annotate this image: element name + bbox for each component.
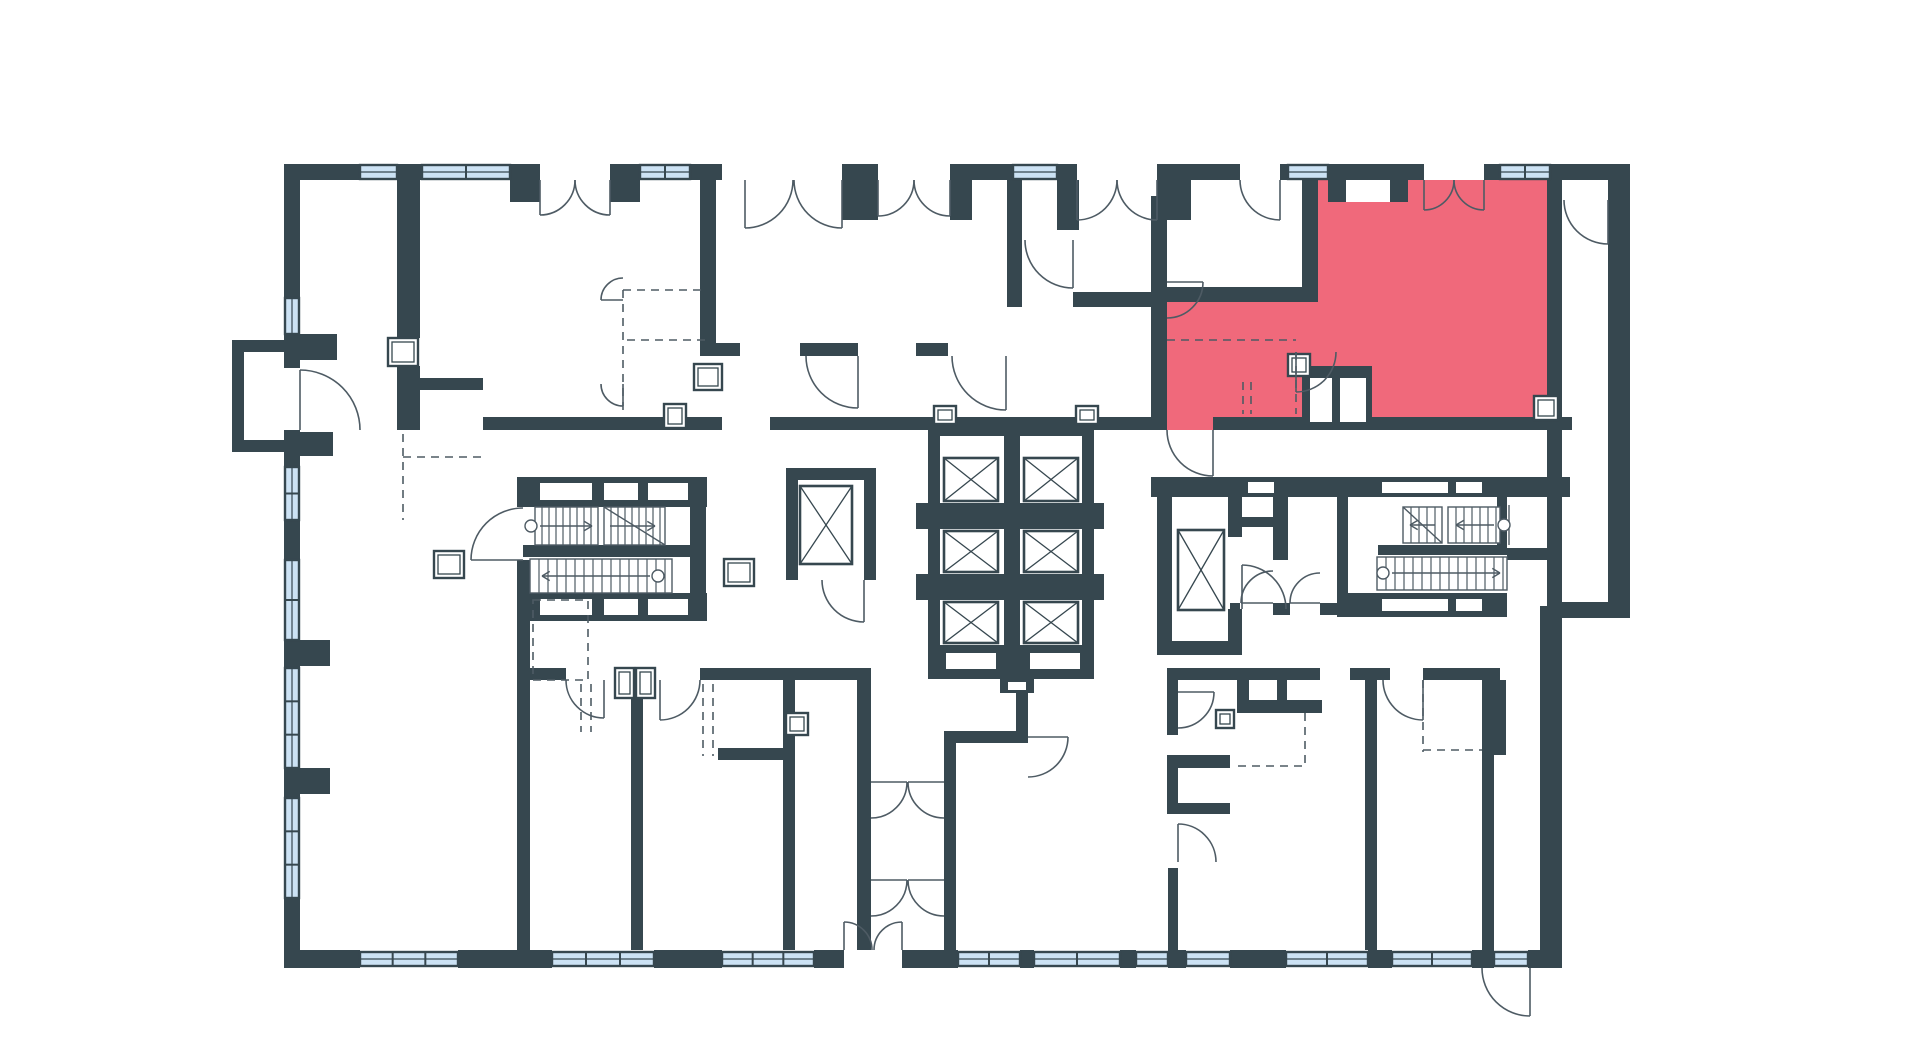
wall-opening: [1340, 378, 1366, 422]
wall-opening: [946, 653, 996, 669]
wall-segment: [1120, 950, 1136, 968]
vent-shaft-box: [786, 713, 808, 735]
wall-segment: [284, 334, 300, 368]
wall-segment: [864, 468, 876, 580]
wall-segment: [654, 950, 722, 968]
door-swing-arc: [745, 180, 793, 228]
wall-segment: [300, 432, 333, 456]
wall-segment: [610, 164, 640, 180]
wall-segment: [1378, 545, 1507, 555]
wall-segment: [842, 164, 878, 180]
door-swing-arc: [952, 356, 1006, 410]
wall-segment: [300, 768, 330, 794]
wall-segment: [510, 180, 540, 202]
stair-start-post: [1377, 567, 1389, 579]
wall-segment: [786, 468, 876, 480]
wall-segment: [1092, 503, 1104, 529]
wall-opening: [1310, 378, 1332, 422]
wall-segment: [1057, 180, 1079, 230]
wall-segment: [232, 440, 284, 452]
wall-segment: [1320, 603, 1337, 615]
wall-opening: [1008, 682, 1026, 690]
wall-segment: [1167, 803, 1230, 814]
door-swing-arc: [1564, 200, 1608, 244]
wall-segment: [1550, 164, 1630, 180]
door-swing-arc: [471, 508, 523, 560]
wall-segment: [1608, 180, 1630, 618]
wall-opening: [1382, 482, 1448, 493]
wall-segment: [284, 768, 300, 798]
wall-segment: [1151, 477, 1570, 497]
wall-segment: [1157, 287, 1318, 302]
wall-segment: [1328, 180, 1346, 202]
vent-shaft-box: [1076, 406, 1098, 424]
wall-segment: [1277, 668, 1287, 713]
wall-opening: [604, 483, 638, 500]
wall-segment: [1472, 950, 1494, 968]
door-swing-arc: [794, 180, 842, 228]
wall-segment: [783, 668, 795, 950]
wall-segment: [1020, 950, 1034, 968]
wall-segment: [690, 164, 722, 180]
wall-segment: [1016, 645, 1028, 743]
wall-segment: [300, 640, 330, 666]
wall-opening: [1456, 599, 1482, 611]
door-swing-arc: [601, 278, 623, 300]
wall-segment: [1213, 417, 1572, 430]
door-swing-arc: [1028, 737, 1068, 777]
wall-segment: [1302, 180, 1318, 302]
wall-segment: [928, 574, 1092, 600]
door-swing-arc: [300, 370, 360, 430]
wall-segment: [1528, 950, 1562, 968]
door-swing-arc: [1077, 180, 1117, 220]
wall-segment: [631, 672, 643, 950]
door-swing-arc: [806, 356, 858, 408]
wall-segment: [700, 343, 740, 356]
wall-segment: [944, 731, 956, 950]
wall-segment: [928, 424, 940, 679]
door-swing-arc: [540, 180, 575, 215]
wall-segment: [1168, 950, 1186, 968]
wall-segment: [458, 950, 552, 968]
wall-segment: [1408, 164, 1424, 180]
wall-segment: [530, 668, 566, 680]
wall-segment: [1230, 517, 1273, 527]
wall-segment: [857, 668, 871, 950]
wall-segment: [795, 668, 857, 680]
wall-opening: [648, 599, 688, 615]
wall-segment: [1562, 602, 1630, 618]
wall-segment: [1547, 430, 1562, 606]
wall-segment: [510, 164, 540, 180]
door-swing-arc: [914, 180, 950, 216]
wall-segment: [1547, 180, 1562, 430]
wall-segment: [718, 748, 783, 760]
wall-segment: [1484, 164, 1500, 180]
stair-start-post: [1498, 519, 1510, 531]
floor-plan-svg: [0, 0, 1920, 1054]
door-swing-arc: [822, 580, 864, 622]
wall-segment: [284, 640, 300, 668]
door-swing-arc: [871, 880, 907, 916]
wall-opening: [1382, 599, 1448, 611]
door-swing-arc: [1383, 680, 1423, 720]
wall-segment: [1273, 497, 1288, 560]
wall-segment: [1004, 424, 1020, 679]
door-swing-arc: [1025, 240, 1073, 288]
wall-segment: [700, 668, 783, 680]
wall-segment: [1230, 603, 1240, 615]
wall-segment: [523, 545, 690, 557]
door-swing-arc: [575, 180, 610, 215]
door-swing-arc: [660, 680, 700, 720]
door-swing-arc: [1167, 430, 1213, 476]
wall-segment: [916, 343, 948, 356]
door-swing-arc: [908, 880, 944, 916]
wall-opening: [1030, 653, 1080, 669]
wall-segment: [1328, 164, 1408, 180]
wall-segment: [1167, 755, 1230, 768]
wall-segment: [1365, 668, 1377, 950]
door-swing-arc: [908, 782, 944, 818]
wall-opening: [1248, 482, 1274, 493]
wall-segment: [610, 180, 640, 202]
wall-segment: [1494, 680, 1506, 755]
door-swing-arc: [874, 922, 902, 950]
wall-segment: [902, 950, 958, 968]
wall-segment: [284, 180, 300, 298]
wall-segment: [950, 164, 1013, 180]
wall-segment: [1167, 680, 1178, 735]
door-swing-arc: [1240, 180, 1280, 220]
wall-segment: [800, 343, 858, 356]
wall-segment: [1157, 164, 1240, 180]
wall-segment: [1507, 548, 1547, 560]
wall-opening: [648, 483, 688, 500]
door-swing-arc: [1178, 824, 1216, 862]
wall-segment: [928, 503, 1092, 529]
wall-segment: [284, 164, 360, 180]
wall-segment: [1082, 424, 1094, 679]
wall-segment: [814, 950, 844, 968]
wall-segment: [944, 731, 1028, 743]
wall-segment: [1230, 950, 1286, 968]
wall-segment: [1157, 180, 1191, 220]
wall-segment: [397, 164, 422, 180]
floor-plan-canvas: [0, 0, 1920, 1054]
door-swing-arc: [1178, 692, 1214, 728]
wall-segment: [1151, 196, 1167, 430]
wall-segment: [1482, 668, 1494, 950]
wall-segment: [403, 378, 483, 390]
wall-opening: [1456, 482, 1482, 493]
wall-segment: [1167, 768, 1178, 803]
wall-segment: [1390, 180, 1408, 202]
wall-segment: [300, 334, 337, 360]
wall-segment: [1007, 180, 1022, 307]
wall-segment: [950, 180, 972, 220]
wall-segment: [1540, 606, 1562, 968]
vent-shaft-box: [1216, 710, 1234, 728]
wall-segment: [284, 430, 300, 467]
wall-segment: [1157, 641, 1242, 655]
wall-segment: [1057, 164, 1077, 180]
stair-start-post: [652, 570, 664, 582]
vent-shaft-box: [934, 406, 956, 424]
door-swing-arc: [566, 680, 604, 718]
wall-segment: [916, 574, 928, 600]
vent-shaft-box: [1288, 354, 1310, 376]
stair-start-post: [525, 520, 537, 532]
wall-opening: [540, 599, 592, 615]
wall-segment: [1157, 497, 1172, 655]
door-swing-arc: [878, 180, 914, 216]
wall-segment: [1368, 950, 1392, 968]
door-swing-arc: [1241, 571, 1273, 603]
wall-segment: [284, 520, 300, 560]
wall-segment: [1092, 574, 1104, 600]
wall-opening: [540, 483, 592, 500]
wall-segment: [397, 366, 420, 430]
wall-segment: [786, 468, 798, 580]
wall-opening: [604, 599, 638, 615]
wall-segment: [284, 950, 360, 968]
wall-segment: [517, 621, 530, 950]
wall-segment: [232, 340, 244, 452]
door-swing-arc: [1482, 968, 1530, 1016]
wall-segment: [700, 180, 716, 356]
wall-segment: [916, 503, 928, 529]
wall-segment: [1168, 868, 1178, 950]
wall-segment: [842, 180, 878, 220]
door-swing-arc: [871, 782, 907, 818]
wall-segment: [397, 180, 420, 338]
door-swing-arc: [1290, 573, 1320, 603]
door-swing-arc: [601, 384, 623, 406]
wall-segment: [1273, 603, 1290, 615]
